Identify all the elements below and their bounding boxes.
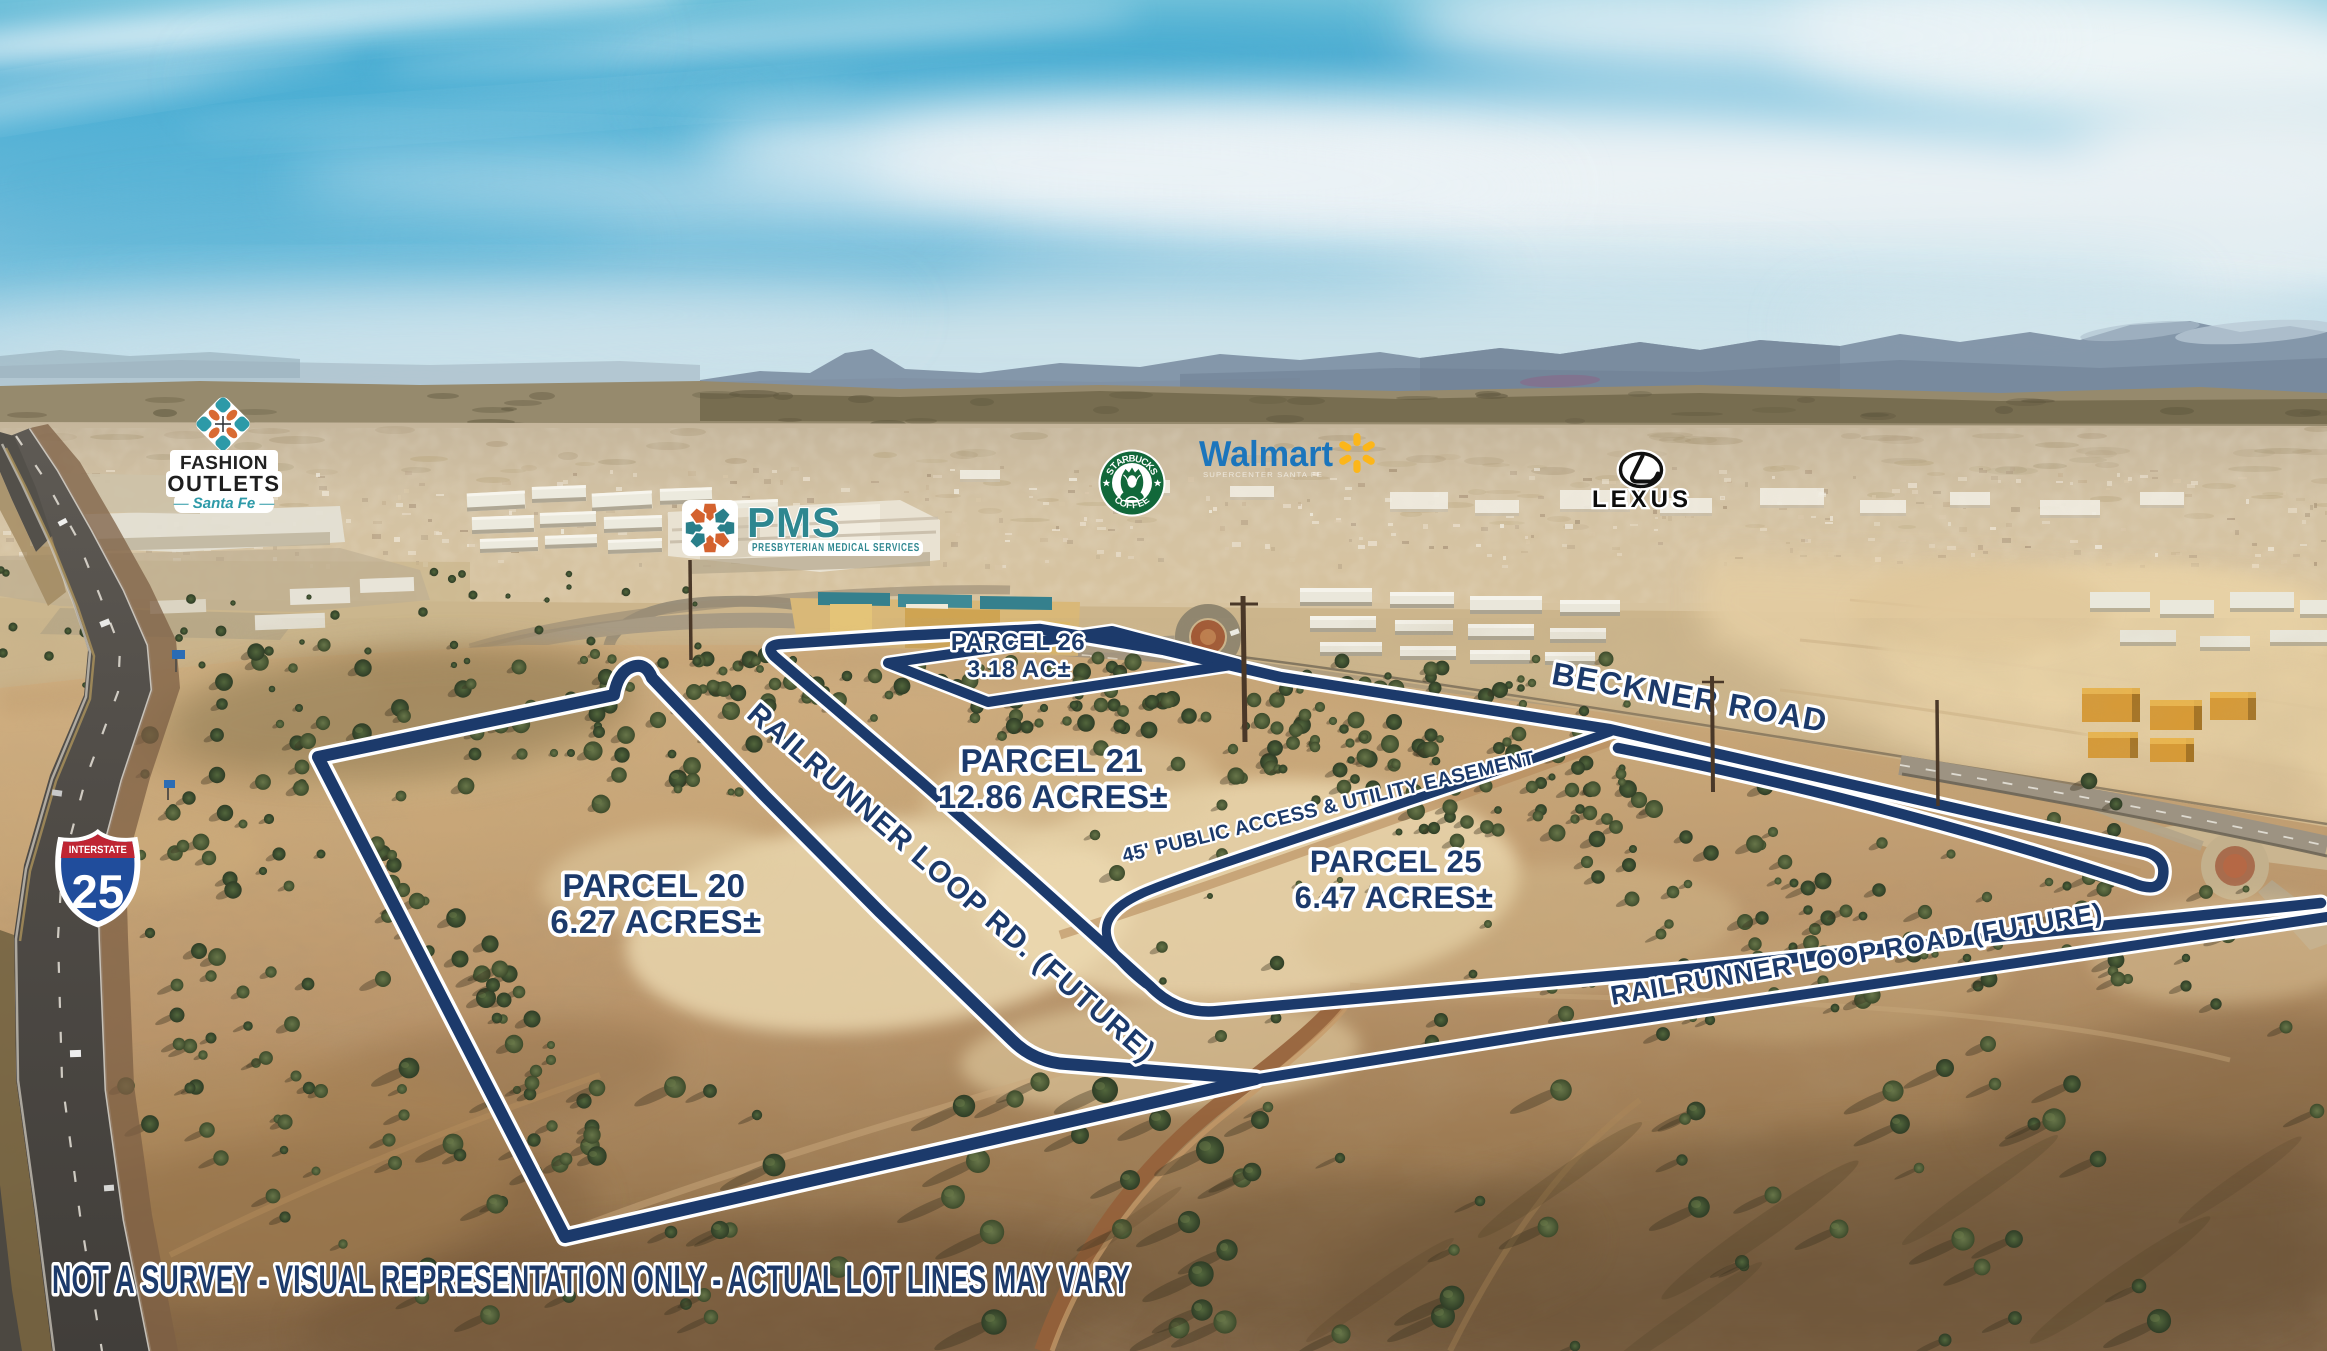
svg-text:12.86 ACRES±: 12.86 ACRES± <box>938 778 1168 815</box>
svg-text:INTERSTATE: INTERSTATE <box>69 843 127 855</box>
svg-text:6.47 ACRES±: 6.47 ACRES± <box>1295 880 1494 915</box>
svg-text:PARCEL 26: PARCEL 26 <box>951 629 1085 656</box>
svg-text:LEXUS: LEXUS <box>1592 486 1692 513</box>
svg-text:— Santa Fe —: — Santa Fe — <box>173 495 276 512</box>
svg-text:PARCEL 20: PARCEL 20 <box>562 867 745 904</box>
svg-text:PARCEL 25: PARCEL 25 <box>1310 844 1482 879</box>
svg-text:OUTLETS: OUTLETS <box>167 471 280 496</box>
svg-text:6.27 ACRES±: 6.27 ACRES± <box>550 903 761 940</box>
svg-text:NOT A SURVEY - VISUAL REPRESEN: NOT A SURVEY - VISUAL REPRESENTATION ONL… <box>52 1258 1130 1302</box>
svg-text:PARCEL 21: PARCEL 21 <box>960 742 1143 779</box>
svg-text:SUPERCENTER SANTA FE: SUPERCENTER SANTA FE <box>1203 472 1323 479</box>
svg-text:3.18 AC±: 3.18 AC± <box>967 656 1071 683</box>
svg-text:25: 25 <box>71 866 124 919</box>
svg-text:Walmart: Walmart <box>1199 433 1333 474</box>
svg-text:PRESBYTERIAN MEDICAL SERVICES: PRESBYTERIAN MEDICAL SERVICES <box>752 542 920 554</box>
svg-text:PMS: PMS <box>747 499 841 546</box>
